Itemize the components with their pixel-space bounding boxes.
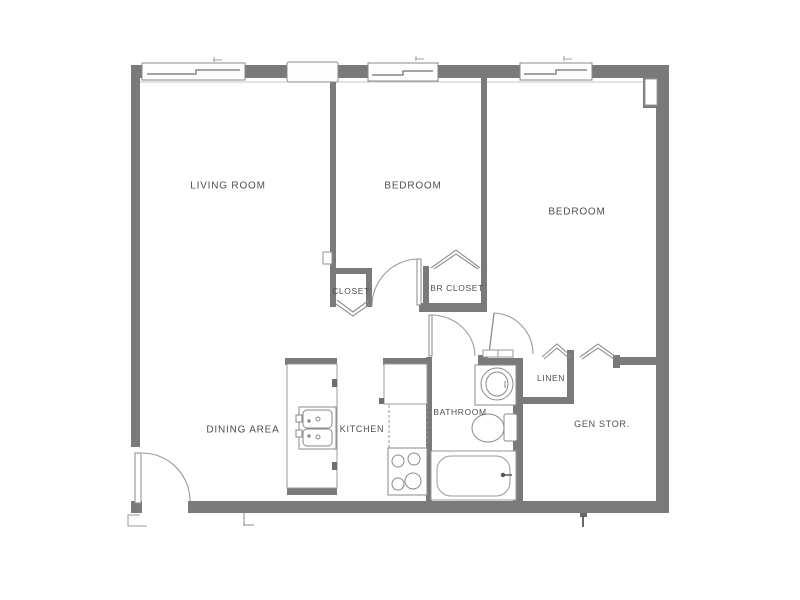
- room-label-closet: CLOSET: [332, 286, 370, 296]
- floor-plan-drawing: [0, 0, 800, 600]
- vanity-sink-icon: [475, 365, 516, 405]
- door-leaf: [489, 313, 494, 354]
- closet-bifold-door: [336, 300, 370, 316]
- door-leaf: [417, 259, 421, 305]
- range-burners-icon: [388, 448, 427, 495]
- toilet-icon: [472, 414, 517, 442]
- right-wall: [656, 65, 669, 513]
- floor-plan-page: LIVING ROOM DINING AREA KITCHEN BEDROOM …: [0, 0, 800, 600]
- bedroom1-bedroom2-wall: [481, 78, 487, 308]
- counter-handle-mark: [332, 462, 337, 470]
- door-swing-arc: [431, 315, 475, 356]
- bathtub-icon: [431, 451, 516, 500]
- linen-bottom-wall: [513, 397, 574, 404]
- refrigerator-icon: [384, 364, 427, 404]
- room-label-gen-stor: GEN STOR.: [574, 419, 630, 429]
- room-label-dining-area: DINING AREA: [206, 425, 279, 436]
- entry-door-swing: [135, 453, 190, 503]
- room-label-linen: LINEN: [537, 373, 565, 383]
- window-icon: [142, 63, 245, 80]
- door-swing-arc: [494, 313, 533, 354]
- counter-handle-mark: [332, 379, 337, 387]
- entry-stoop-outline: [128, 515, 147, 526]
- bedroom1-bottom-wall: [419, 303, 487, 312]
- room-label-bathroom: BATHROOM: [433, 407, 486, 417]
- bottom-wall: [188, 501, 656, 513]
- linen-right-wall: [567, 350, 574, 404]
- top-wall-segment: [438, 65, 520, 78]
- window-icon: [287, 62, 338, 82]
- closet-top-wall: [330, 268, 372, 274]
- br-closet-bifold-door: [431, 250, 480, 269]
- br-closet-left-wall: [423, 266, 429, 306]
- bathroom-fixtures: [431, 365, 517, 500]
- door-leaf: [135, 453, 141, 503]
- corner-chase-notch: [645, 79, 657, 105]
- room-label-kitchen: KITCHEN: [340, 424, 384, 434]
- walls: [131, 65, 669, 513]
- kitchen-double-sink-icon: [296, 407, 336, 449]
- door-swing-arc: [142, 453, 190, 501]
- top-wall-segment: [245, 65, 287, 78]
- room-label-living-room: LIVING ROOM: [190, 181, 265, 192]
- wall-niche: [323, 252, 332, 264]
- door-leaf: [429, 315, 432, 356]
- room-label-bedroom-2: BEDROOM: [548, 207, 605, 218]
- refrigerator-handle-mark: [379, 398, 384, 404]
- bedroom-2-door-swing: [483, 313, 533, 357]
- left-wall: [131, 65, 140, 447]
- exterior-marks: [128, 513, 587, 527]
- dimension-mark: [213, 56, 572, 62]
- bathroom-top-wall: [487, 358, 516, 365]
- bedroom-1-door-swing: [372, 259, 421, 306]
- room-label-br-closet: BR CLOSET: [430, 283, 484, 293]
- room-label-bedroom-1: BEDROOM: [384, 181, 441, 192]
- door-swing-arc: [372, 259, 417, 306]
- bathroom-door-swing: [429, 315, 475, 356]
- upper-cabinet-dashed-icon: [389, 404, 427, 448]
- gen-stor-bifold-door: [580, 344, 616, 359]
- top-wall-segment: [338, 65, 368, 78]
- gen-stor-top-wall: [617, 357, 656, 365]
